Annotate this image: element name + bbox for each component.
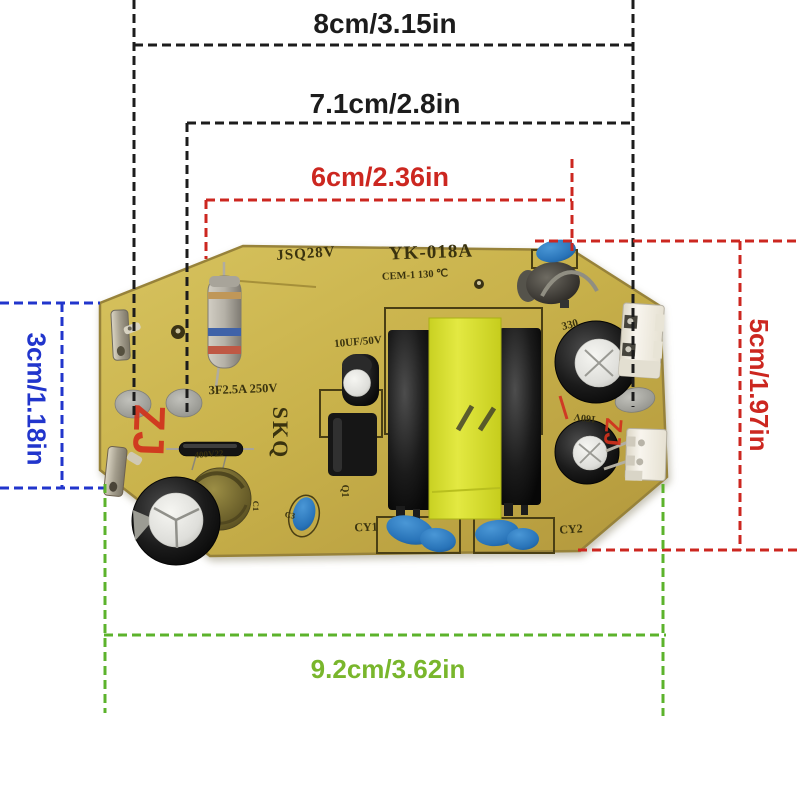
product-image: JSQ28V YK-018A CEM-1 130 ℃ 3F2.5A 250V 1…	[0, 0, 800, 800]
dimension-label-width-bottom: 9.2cm/3.62in	[288, 654, 488, 685]
dimension-lines-blue	[0, 303, 104, 488]
dimension-label-width-top: 8cm/3.15in	[300, 8, 470, 40]
dimension-label-width-inner: 6cm/2.36in	[295, 162, 465, 193]
dimension-label-width-middle: 7.1cm/2.8in	[300, 88, 470, 120]
dimension-lines-black	[134, 0, 633, 416]
dimension-lines-red	[206, 159, 800, 551]
dimension-label-height-right: 5cm/1.97in	[745, 318, 773, 452]
dimension-label-height-left: 3cm/1.18in	[22, 331, 52, 468]
